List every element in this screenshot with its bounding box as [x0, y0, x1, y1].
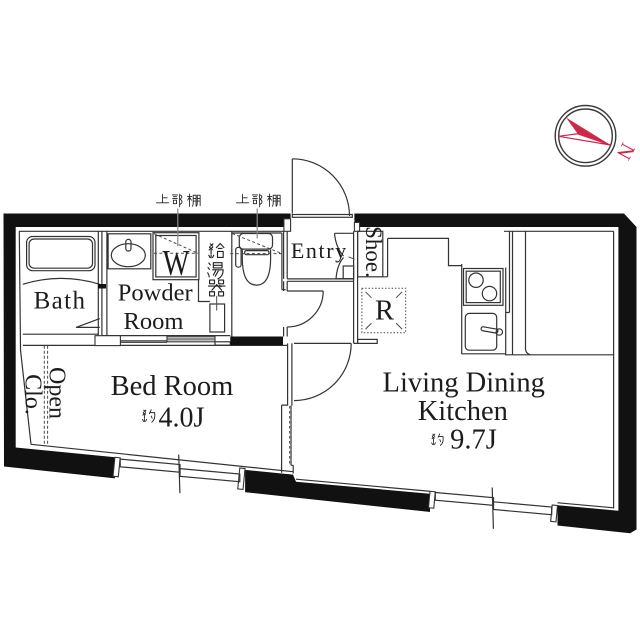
svg-text:Entry: Entry [291, 238, 348, 263]
svg-text:Kitchen: Kitchen [418, 396, 508, 427]
svg-text:4.0J: 4.0J [159, 402, 205, 433]
svg-text:Open: Open [43, 367, 69, 419]
svg-text:Room: Room [124, 308, 184, 335]
svg-text:Clo.: Clo. [19, 374, 45, 415]
svg-text:9.7J: 9.7J [450, 424, 497, 455]
svg-text:Living Dining: Living Dining [383, 368, 545, 399]
svg-text:Bath: Bath [34, 288, 87, 315]
svg-text:Bed Room: Bed Room [111, 371, 234, 402]
svg-text:Powder: Powder [118, 280, 193, 307]
svg-text:R: R [375, 296, 394, 327]
svg-text:Shoe.: Shoe. [361, 226, 386, 278]
svg-text:W: W [163, 243, 190, 283]
